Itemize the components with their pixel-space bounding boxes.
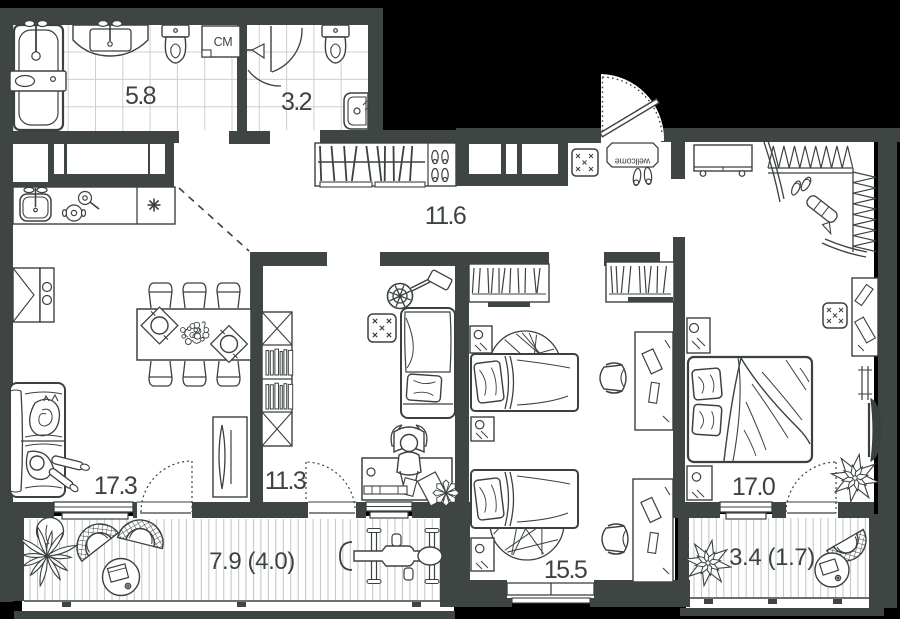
svg-text:СМ: СМ (214, 35, 233, 49)
svg-text:3.4 (1.7): 3.4 (1.7) (729, 544, 815, 571)
svg-text:11.3: 11.3 (265, 467, 306, 495)
svg-text:5.8: 5.8 (125, 82, 156, 110)
svg-text:7.9 (4.0): 7.9 (4.0) (209, 548, 295, 575)
svg-text:15.5: 15.5 (544, 556, 587, 584)
svg-text:wellcome: wellcome (615, 157, 651, 167)
svg-text:17.3: 17.3 (94, 472, 137, 500)
svg-text:17.0: 17.0 (732, 473, 775, 501)
svg-text:3.2: 3.2 (281, 88, 312, 116)
svg-text:11.6: 11.6 (425, 202, 466, 230)
